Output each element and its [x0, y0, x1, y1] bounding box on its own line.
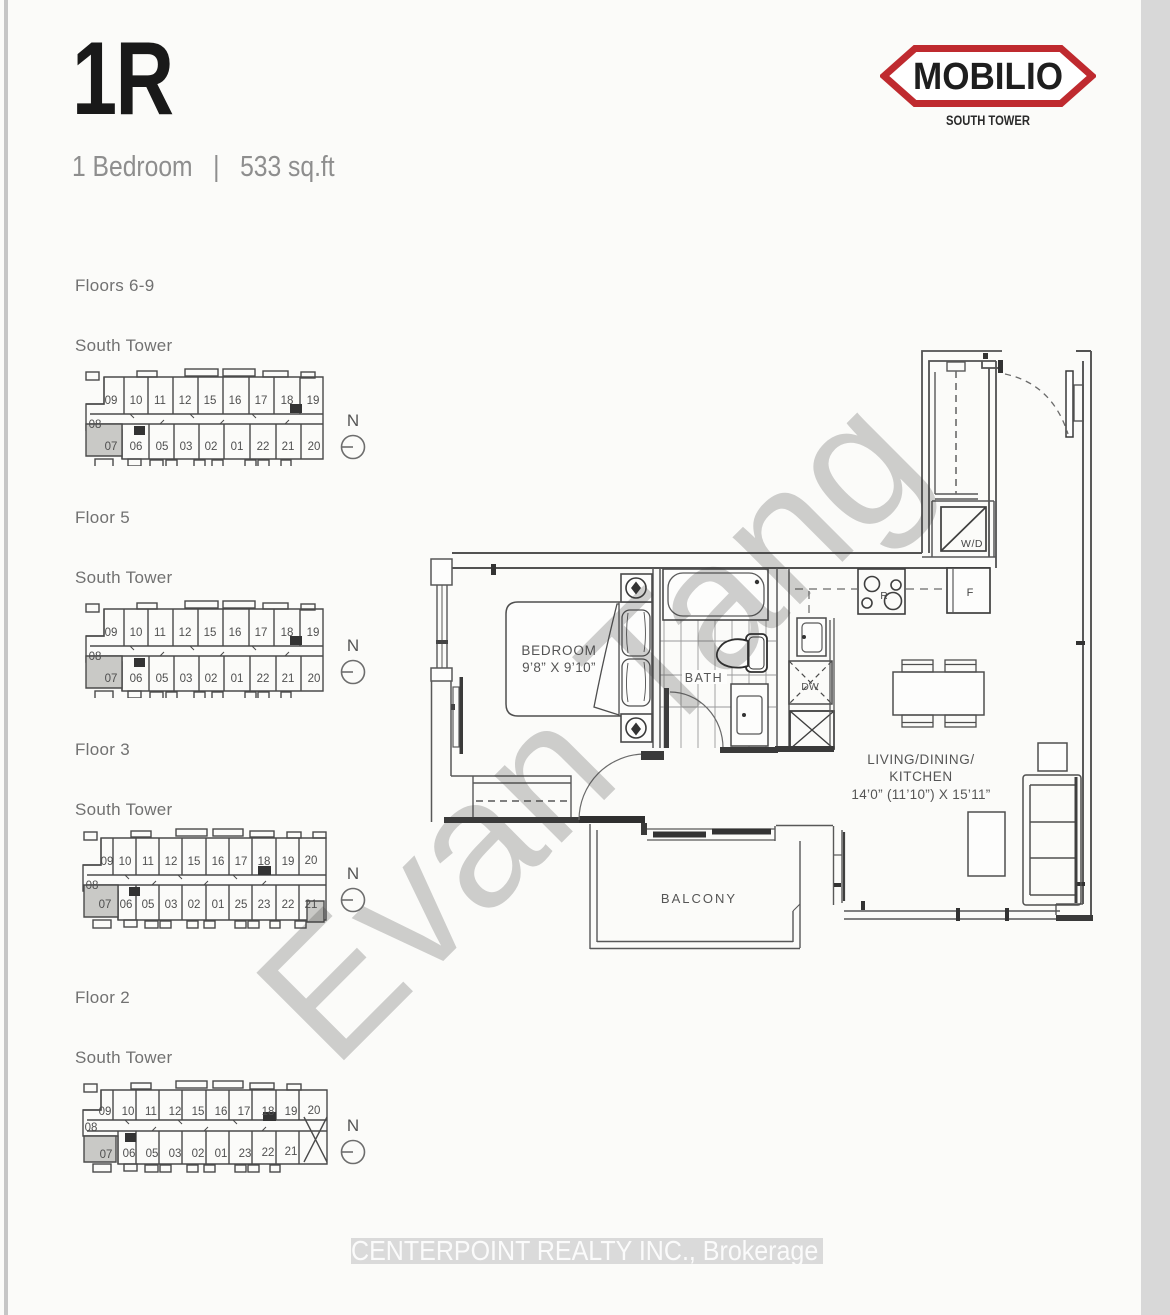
svg-text:16: 16	[215, 1106, 228, 1118]
svg-text:SOUTH TOWER: SOUTH TOWER	[946, 113, 1030, 128]
svg-text:12: 12	[169, 1106, 182, 1118]
svg-text:06: 06	[123, 1148, 136, 1160]
svg-text:03: 03	[180, 673, 193, 685]
svg-text:02: 02	[188, 899, 201, 911]
svg-text:18: 18	[281, 627, 294, 639]
svg-text:09: 09	[99, 1106, 112, 1118]
svg-text:18: 18	[258, 856, 271, 868]
svg-text:25: 25	[235, 899, 248, 911]
svg-text:19: 19	[285, 1106, 298, 1118]
svg-text:22: 22	[257, 441, 270, 453]
svg-text:15: 15	[188, 856, 201, 868]
svg-text:09: 09	[105, 395, 118, 407]
svg-text:MOBILIO: MOBILIO	[913, 56, 1063, 98]
svg-text:15: 15	[204, 395, 217, 407]
svg-text:R: R	[880, 591, 887, 602]
svg-text:12: 12	[179, 627, 192, 639]
svg-text:06: 06	[130, 441, 143, 453]
svg-text:19: 19	[307, 395, 320, 407]
svg-text:N: N	[347, 1116, 359, 1135]
svg-text:21: 21	[282, 673, 295, 685]
svg-text:03: 03	[169, 1148, 182, 1160]
svg-text:11: 11	[145, 1106, 157, 1118]
svg-text:21: 21	[285, 1146, 298, 1158]
svg-text:02: 02	[205, 673, 218, 685]
svg-text:20: 20	[308, 673, 321, 685]
svg-text:20: 20	[305, 855, 318, 867]
svg-text:21: 21	[305, 899, 318, 911]
svg-text:09: 09	[101, 856, 114, 868]
svg-text:01: 01	[215, 1148, 228, 1160]
svg-text:12: 12	[179, 395, 192, 407]
svg-text:19: 19	[307, 627, 320, 639]
svg-text:18: 18	[281, 395, 294, 407]
svg-text:07: 07	[99, 899, 112, 911]
svg-text:03: 03	[180, 441, 193, 453]
svg-text:23: 23	[239, 1148, 252, 1160]
svg-text:15: 15	[192, 1106, 205, 1118]
svg-text:N: N	[347, 411, 359, 430]
svg-text:08: 08	[86, 880, 99, 892]
svg-text:16: 16	[229, 627, 242, 639]
svg-text:F: F	[967, 587, 974, 599]
svg-text:W/D: W/D	[961, 538, 983, 550]
svg-text:10: 10	[119, 856, 132, 868]
svg-text:22: 22	[282, 899, 295, 911]
svg-text:18: 18	[262, 1106, 275, 1118]
svg-text:11: 11	[142, 856, 154, 868]
svg-text:BALCONY: BALCONY	[661, 891, 737, 906]
svg-text:20: 20	[308, 441, 321, 453]
svg-text:19: 19	[282, 856, 295, 868]
svg-text:05: 05	[146, 1148, 159, 1160]
svg-text:20: 20	[308, 1105, 321, 1117]
svg-text:16: 16	[212, 856, 225, 868]
svg-text:BEDROOM: BEDROOM	[521, 643, 596, 658]
svg-text:N: N	[347, 636, 359, 655]
svg-text:09: 09	[105, 627, 118, 639]
svg-text:06: 06	[130, 673, 143, 685]
svg-text:07: 07	[105, 441, 118, 453]
svg-text:03: 03	[165, 899, 178, 911]
svg-text:15: 15	[204, 627, 217, 639]
svg-text:01: 01	[231, 441, 244, 453]
svg-text:08: 08	[85, 1122, 98, 1134]
svg-text:02: 02	[205, 441, 218, 453]
svg-text:08: 08	[89, 651, 102, 663]
svg-text:17: 17	[255, 395, 268, 407]
svg-text:17: 17	[235, 856, 248, 868]
svg-text:10: 10	[130, 395, 143, 407]
svg-text:KITCHEN: KITCHEN	[889, 769, 952, 784]
svg-text:N: N	[347, 864, 359, 883]
svg-text:17: 17	[255, 627, 268, 639]
svg-text:05: 05	[156, 673, 169, 685]
svg-text:05: 05	[142, 899, 155, 911]
svg-text:22: 22	[257, 673, 270, 685]
svg-text:01: 01	[212, 899, 225, 911]
svg-text:06: 06	[120, 899, 133, 911]
svg-text:23: 23	[258, 899, 271, 911]
svg-text:17: 17	[238, 1106, 251, 1118]
svg-text:11: 11	[154, 395, 166, 407]
svg-text:BATH: BATH	[685, 671, 723, 685]
svg-text:05: 05	[156, 441, 169, 453]
svg-text:02: 02	[192, 1148, 205, 1160]
svg-text:12: 12	[165, 856, 178, 868]
svg-text:22: 22	[262, 1147, 275, 1159]
svg-text:LIVING/DINING/: LIVING/DINING/	[867, 752, 974, 767]
svg-text:11: 11	[154, 627, 166, 639]
svg-text:07: 07	[105, 673, 118, 685]
svg-text:10: 10	[130, 627, 143, 639]
svg-text:21: 21	[282, 441, 295, 453]
svg-text:07: 07	[100, 1149, 113, 1161]
svg-text:08: 08	[89, 419, 102, 431]
svg-text:14’0” (11’10”) X 15’11”: 14’0” (11’10”) X 15’11”	[851, 787, 990, 802]
svg-text:16: 16	[229, 395, 242, 407]
svg-text:DW: DW	[801, 681, 819, 693]
svg-text:01: 01	[231, 673, 244, 685]
svg-text:9’8” X 9’10”: 9’8” X 9’10”	[522, 660, 596, 675]
svg-text:10: 10	[122, 1106, 135, 1118]
